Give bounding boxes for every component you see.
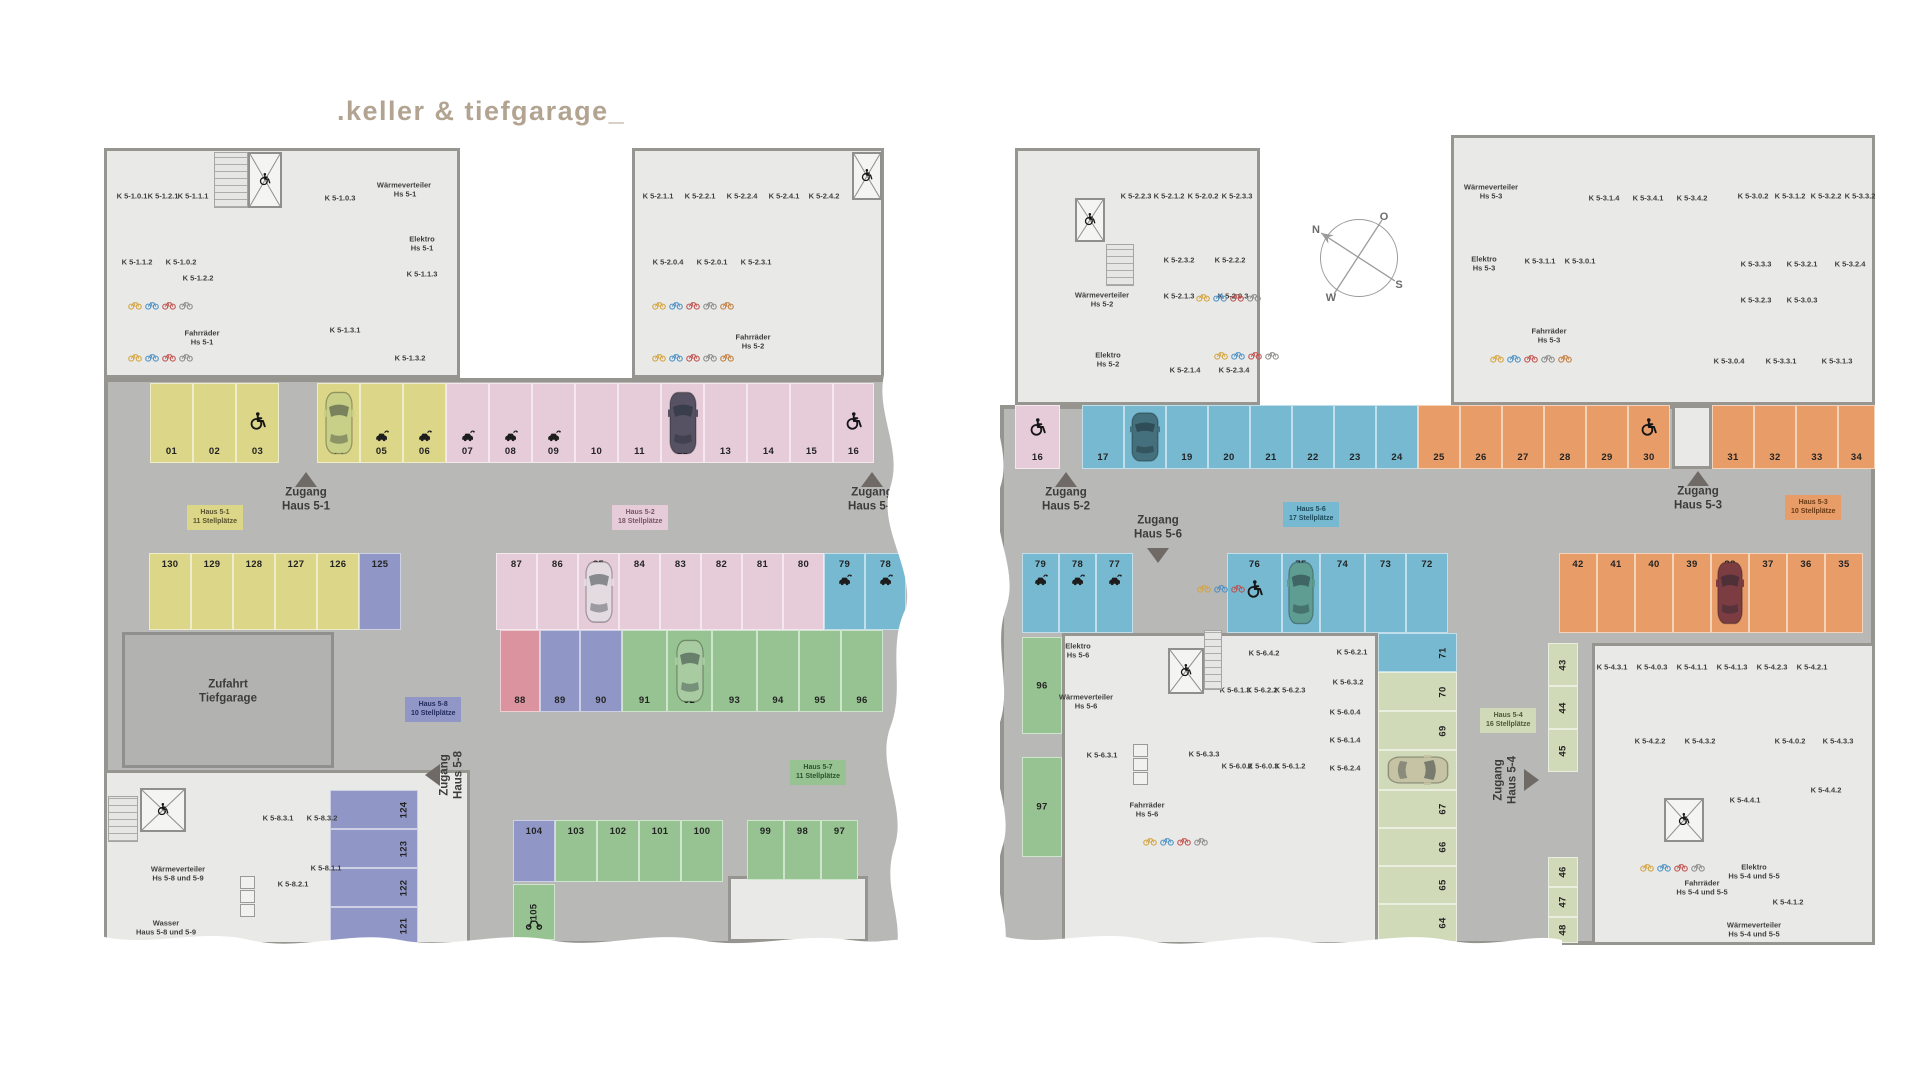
room-label: K 5-3.2.3 — [1741, 295, 1772, 304]
compass-label-o: O — [1380, 211, 1389, 223]
parking-stall-129: 129 — [191, 553, 233, 630]
stall-number: 77 — [1097, 559, 1132, 570]
bicycle-icon — [1558, 353, 1572, 363]
zone-label: Zugang Haus 5-2 — [1042, 486, 1090, 515]
room-label: K 5-2.3.4 — [1219, 365, 1250, 374]
wheelchair-icon — [1180, 664, 1191, 677]
bicycle-icon — [652, 300, 666, 310]
parking-stall-10: 10 — [575, 383, 618, 463]
stall-number: 26 — [1461, 452, 1501, 463]
stall-number: 91 — [623, 695, 666, 706]
bike-rack — [1197, 583, 1245, 593]
parking-stall-16: 16 — [1015, 405, 1060, 469]
stall-number: 86 — [538, 559, 577, 570]
stall-number: 100 — [682, 826, 722, 837]
parking-stall-121: 121 — [330, 907, 418, 945]
room-label: Wärmeverteiler Hs 5-8 und 5-9 — [151, 865, 205, 884]
page-title: .keller & tiefgarage_ — [337, 96, 625, 127]
bike-rack — [1214, 350, 1279, 360]
parking-stall-95: 95 — [799, 630, 841, 712]
stall-number: 124 — [399, 795, 410, 825]
elevator — [140, 788, 186, 832]
room-label: K 5-4.1.2 — [1773, 897, 1804, 906]
stall-number: 41 — [1598, 559, 1634, 570]
bicycle-icon — [686, 352, 700, 362]
zone-badge: Haus 5-3 10 Stellplätze — [1785, 495, 1841, 520]
room-label: K 5-4.2.2 — [1635, 736, 1666, 745]
stall-number: 07 — [447, 446, 488, 457]
elevator — [248, 152, 282, 208]
room-label: K 5-6.4.2 — [1249, 648, 1280, 657]
stall-number: 125 — [360, 559, 400, 570]
parking-stall-48: 48 — [1548, 917, 1578, 943]
stall-number: 05 — [361, 446, 402, 457]
parking-stall-26: 26 — [1460, 405, 1502, 469]
zone-label: Zugang Haus 5-4 — [1492, 756, 1521, 804]
room-label: Fahrräder Hs 5-2 — [735, 333, 770, 352]
direction-triangle-u — [295, 472, 317, 487]
room-label: K 5-3.1.4 — [1589, 193, 1620, 202]
parking-stall-24: 24 — [1376, 405, 1418, 469]
bicycle-icon — [1231, 350, 1245, 360]
parking-stall-42: 42 — [1559, 553, 1597, 633]
parking-stall-11: 11 — [618, 383, 661, 463]
stall-number: 16 — [834, 446, 873, 457]
parking-stall-29: 29 — [1586, 405, 1628, 469]
room-label: K 5-1.0.2 — [166, 257, 197, 266]
parking-stall-32: 32 — [1754, 405, 1796, 469]
parking-stall-27: 27 — [1502, 405, 1544, 469]
stall-number: 27 — [1503, 452, 1543, 463]
parking-stall-23: 23 — [1334, 405, 1376, 469]
parked-car — [324, 390, 354, 456]
stall-number: 80 — [784, 559, 823, 570]
wheelchair-icon — [1084, 213, 1095, 226]
room-label: K 5-2.1.4 — [1170, 365, 1201, 374]
stall-number: 15 — [791, 446, 832, 457]
parking-stall-75: 75 — [1282, 553, 1320, 633]
ev-charger-icon — [418, 430, 432, 442]
room-label: K 5-2.3.3 — [1222, 191, 1253, 200]
stall-number: 103 — [556, 826, 596, 837]
room-label: K 5-4.3.1 — [1597, 662, 1628, 671]
parking-stall-46: 46 — [1548, 857, 1578, 887]
room-label: Fahrräder Hs 5-1 — [184, 329, 219, 348]
stall-number: 28 — [1545, 452, 1585, 463]
parking-stall-89: 89 — [540, 630, 580, 712]
stall-number: 121 — [399, 911, 410, 941]
bicycle-icon — [720, 352, 734, 362]
parking-stall-96: 96 — [1022, 637, 1062, 734]
room-label: K 5-4.3.3 — [1823, 736, 1854, 745]
room-label: K 5-6.2.3 — [1275, 685, 1306, 694]
stall-number: 97 — [1023, 802, 1061, 813]
parking-stall-17: 17 — [1082, 405, 1124, 469]
parking-stall-105: 105 — [513, 884, 555, 940]
room-label: K 5-6.1.4 — [1330, 735, 1361, 744]
parking-stall-87: 87 — [496, 553, 537, 630]
parked-car — [1287, 560, 1315, 626]
parking-stall-96: 96 — [841, 630, 883, 712]
stall-number: 23 — [1335, 452, 1375, 463]
parking-stall-98: 98 — [784, 820, 821, 880]
parking-stall-79: 79 — [1022, 553, 1059, 633]
bicycle-icon — [162, 352, 176, 362]
stall-number: 96 — [842, 695, 882, 706]
car-icon — [324, 390, 354, 456]
parking-stall-37: 37 — [1749, 553, 1787, 633]
stall-number: 104 — [514, 826, 554, 837]
storage-shelf — [1133, 744, 1148, 786]
car-icon — [1287, 560, 1315, 626]
room-label: K 5-4.4.1 — [1730, 795, 1761, 804]
stall-number: 43 — [1558, 650, 1569, 680]
room-label: K 5-3.2.2 — [1811, 191, 1842, 200]
bike-rack — [652, 300, 734, 310]
bicycle-icon — [1197, 583, 1211, 593]
stall-number: 40 — [1636, 559, 1672, 570]
parking-stall-127: 127 — [275, 553, 317, 630]
stall-number: 14 — [748, 446, 789, 457]
parking-stall-15: 15 — [790, 383, 833, 463]
room-label: K 5-6.1.2 — [1275, 761, 1306, 770]
wheelchair-icon — [259, 173, 270, 186]
stall-number: 44 — [1558, 693, 1569, 723]
stall-number: 78 — [866, 559, 905, 570]
room-label: K 5-3.3.2 — [1845, 191, 1876, 200]
room-label: K 5-3.1.2 — [1775, 191, 1806, 200]
wheelchair-icon — [1247, 580, 1263, 598]
direction-triangle-u — [861, 472, 883, 487]
room-label: K 5-1.3.1 — [330, 325, 361, 334]
compass-needle — [1308, 207, 1408, 307]
ev-charger-icon — [838, 574, 852, 586]
parked-car — [668, 390, 698, 456]
parking-stall-128: 128 — [233, 553, 275, 630]
parking-stall-70: 70 — [1378, 672, 1457, 711]
parking-stall-77: 77 — [1096, 553, 1133, 633]
parking-stall-66: 66 — [1378, 828, 1457, 866]
bicycle-icon — [652, 352, 666, 362]
compass-label-s: S — [1395, 279, 1402, 291]
ev-charger-icon — [504, 430, 518, 442]
ev-charger-icon — [547, 430, 561, 442]
stall-number: 11 — [619, 446, 660, 457]
bicycle-icon — [1231, 583, 1245, 593]
bike-rack — [1640, 862, 1705, 872]
stall-number: 66 — [1438, 832, 1449, 862]
parking-stall-35: 35 — [1825, 553, 1863, 633]
room-label: K 5-1.0.3 — [325, 193, 356, 202]
bicycle-icon — [686, 300, 700, 310]
stall-number: 08 — [490, 446, 531, 457]
stall-number: 98 — [785, 826, 820, 837]
parking-stall-09: 09 — [532, 383, 575, 463]
ev-charger-icon — [879, 574, 893, 586]
car-icon — [584, 559, 614, 624]
bicycle-icon — [145, 300, 159, 310]
wheelchair-icon — [157, 803, 168, 816]
rooms-block — [728, 876, 868, 942]
stall-number: 99 — [748, 826, 783, 837]
ev-charger-icon — [418, 430, 432, 442]
bicycle-icon — [1214, 583, 1228, 593]
parking-stall-103: 103 — [555, 820, 597, 882]
parking-stall-28: 28 — [1544, 405, 1586, 469]
parking-stall-31: 31 — [1712, 405, 1754, 469]
elevator — [1168, 648, 1204, 694]
bicycle-icon — [703, 300, 717, 310]
elevator — [1664, 798, 1704, 842]
compass-label-n: N — [1312, 224, 1320, 236]
bicycle-icon — [1194, 836, 1208, 846]
stall-number: 128 — [234, 559, 274, 570]
wheelchair-icon — [1084, 213, 1095, 226]
parking-stall-44: 44 — [1548, 686, 1578, 729]
parking-stall-18: 18 — [1124, 405, 1166, 469]
parking-stall-65: 65 — [1378, 866, 1457, 904]
parking-stall-40: 40 — [1635, 553, 1673, 633]
wheelchair-icon — [861, 169, 872, 182]
direction-triangle-d — [1147, 548, 1169, 563]
ev-charger-icon — [375, 430, 389, 442]
stall-number: 37 — [1750, 559, 1786, 570]
stall-number: 79 — [1023, 559, 1058, 570]
parking-stall-38: 38 — [1711, 553, 1749, 633]
parking-stall-12: 12 — [661, 383, 704, 463]
stall-number: 65 — [1438, 870, 1449, 900]
stall-number: 87 — [497, 559, 536, 570]
room-label: K 5-2.0.2 — [1188, 191, 1219, 200]
direction-triangle-l — [425, 764, 440, 786]
stall-number: 20 — [1209, 452, 1249, 463]
parking-stall-83: 83 — [660, 553, 701, 630]
room-label: Wärmeverteiler Hs 5-1 — [377, 181, 431, 200]
parked-car — [584, 559, 614, 624]
room-label: K 5-2.3.2 — [1164, 255, 1195, 264]
car-icon — [1716, 560, 1744, 626]
room-label: K 5-8.2.1 — [278, 879, 309, 888]
parking-stall-67: 67 — [1378, 790, 1457, 828]
stairs — [214, 152, 248, 208]
zone-badge: Haus 5-6 17 Stellplätze — [1283, 502, 1339, 527]
stall-number: 19 — [1167, 452, 1207, 463]
direction-triangle-u — [1687, 471, 1709, 486]
parking-stall-41: 41 — [1597, 553, 1635, 633]
parking-stall-122: 122 — [330, 868, 418, 907]
bicycle-icon — [1640, 862, 1654, 872]
room-label: K 5-3.3.1 — [1766, 356, 1797, 365]
parking-stall-39: 39 — [1673, 553, 1711, 633]
bike-rack — [1490, 353, 1572, 363]
room-label: Wärmeverteiler Hs 5-4 und 5-5 — [1727, 921, 1781, 940]
room-label: K 5-1.1.3 — [407, 269, 438, 278]
wheelchair-icon — [846, 412, 862, 430]
parking-stall-68: 68 — [1378, 750, 1457, 790]
stall-number: 88 — [501, 695, 539, 706]
car-icon — [668, 390, 698, 456]
elevator — [852, 152, 882, 200]
stall-number: 09 — [533, 446, 574, 457]
parking-stall-124: 124 — [330, 790, 418, 829]
stall-number: 130 — [150, 559, 190, 570]
stall-number: 42 — [1560, 559, 1596, 570]
parking-stall-47: 47 — [1548, 887, 1578, 917]
bicycle-icon — [179, 300, 193, 310]
bike-rack — [1143, 836, 1208, 846]
stall-number: 02 — [194, 446, 235, 457]
wheelchair-icon — [250, 412, 266, 430]
stall-number: 82 — [702, 559, 741, 570]
room-label: K 5-4.1.3 — [1717, 662, 1748, 671]
room-label: K 5-2.4.1 — [769, 191, 800, 200]
ev-charger-icon — [838, 574, 852, 586]
stall-number: 72 — [1407, 559, 1447, 570]
bicycle-icon — [1177, 836, 1191, 846]
room-label: K 5-3.0.4 — [1714, 356, 1745, 365]
room-label: K 5-2.2.4 — [727, 191, 758, 200]
parking-stall-45: 45 — [1548, 729, 1578, 772]
stall-number: 33 — [1797, 452, 1837, 463]
room-label: Fahrräder Hs 5-3 — [1531, 327, 1566, 346]
room-label: K 5-2.2.2 — [1215, 255, 1246, 264]
room-label: Wasser Haus 5-8 und 5-9 — [136, 919, 196, 938]
stall-number: 95 — [800, 695, 840, 706]
bicycle-icon — [1160, 836, 1174, 846]
stairs — [108, 796, 138, 842]
room-label: Wärmeverteiler Hs 5-6 — [1059, 693, 1113, 712]
ev-charger-icon — [1071, 574, 1085, 586]
parking-stall-02: 02 — [193, 383, 236, 463]
parking-stall-01: 01 — [150, 383, 193, 463]
parking-stall-100: 100 — [681, 820, 723, 882]
room-label: K 5-4.3.2 — [1685, 736, 1716, 745]
rooms-block — [1672, 405, 1712, 469]
bicycle-icon — [145, 352, 159, 362]
parking-stall-82: 82 — [701, 553, 742, 630]
parking-stall-25: 25 — [1418, 405, 1460, 469]
parking-stall-13: 13 — [704, 383, 747, 463]
stall-number: 83 — [661, 559, 700, 570]
zone-label: Zugang Haus 5-2 — [848, 486, 896, 515]
stall-number: 71 — [1438, 638, 1449, 668]
parking-stall-22: 22 — [1292, 405, 1334, 469]
car-icon — [1386, 755, 1450, 785]
parking-stall-74: 74 — [1320, 553, 1365, 633]
stall-number: 22 — [1293, 452, 1333, 463]
bicycle-icon — [1490, 353, 1504, 363]
stall-number: 64 — [1438, 908, 1449, 938]
stall-number: 45 — [1558, 736, 1569, 766]
zone-badge: Haus 5-4 16 Stellplätze — [1480, 708, 1536, 733]
bicycle-icon — [720, 300, 734, 310]
parked-car — [1130, 411, 1160, 463]
parking-stall-81: 81 — [742, 553, 783, 630]
bicycle-icon — [703, 352, 717, 362]
room-label: K 5-3.1.1 — [1525, 256, 1556, 265]
room-label: K 5-4.2.1 — [1797, 662, 1828, 671]
stall-number: 67 — [1438, 794, 1449, 824]
stall-number: 36 — [1788, 559, 1824, 570]
wheelchair-icon — [861, 169, 872, 182]
wheelchair-icon — [1641, 418, 1657, 436]
room-label: K 5-2.2.1 — [685, 191, 716, 200]
room-label: K 5-1.1.2 — [122, 257, 153, 266]
ev-charger-icon — [375, 430, 389, 442]
parking-stall-90: 90 — [580, 630, 622, 712]
stairs — [1106, 244, 1134, 286]
ev-charger-icon — [1108, 574, 1122, 586]
parking-stall-97: 97 — [821, 820, 858, 880]
room-label: K 5-4.0.3 — [1637, 662, 1668, 671]
parking-stall-104: 104 — [513, 820, 555, 882]
stall-number: 06 — [404, 446, 445, 457]
room-label: K 5-1.3.2 — [395, 353, 426, 362]
zone-badge: Haus 5-7 11 Stellplätze — [790, 760, 846, 785]
stall-number: 96 — [1023, 680, 1061, 691]
bicycle-icon — [1247, 292, 1261, 302]
room-label: K 5-6.2.1 — [1337, 647, 1368, 656]
bicycle-icon — [1143, 836, 1157, 846]
bike-rack — [1196, 292, 1261, 302]
wheelchair-icon — [1030, 418, 1046, 436]
parking-stall-97: 97 — [1022, 757, 1062, 857]
stall-number: 81 — [743, 559, 782, 570]
parking-stall-84: 84 — [619, 553, 660, 630]
bike-rack — [128, 352, 193, 362]
room-label: K 5-6.0.4 — [1330, 707, 1361, 716]
bicycle-icon — [162, 300, 176, 310]
stall-number: 126 — [318, 559, 358, 570]
stall-number: 25 — [1419, 452, 1459, 463]
stall-number: 97 — [822, 826, 857, 837]
stall-number: 35 — [1826, 559, 1862, 570]
room-label: K 5-4.1.1 — [1677, 662, 1708, 671]
stall-number: 129 — [192, 559, 232, 570]
parking-stall-36: 36 — [1787, 553, 1825, 633]
stall-number: 10 — [576, 446, 617, 457]
bicycle-icon — [1248, 350, 1262, 360]
parking-stall-94: 94 — [757, 630, 799, 712]
stall-number: 30 — [1629, 452, 1669, 463]
stall-number: 76 — [1228, 559, 1281, 570]
parking-stall-130: 130 — [149, 553, 191, 630]
parking-stall-92: 92 — [667, 630, 712, 712]
bicycle-icon — [1230, 292, 1244, 302]
zone-label: Zugang Haus 5-6 — [1134, 514, 1182, 543]
parking-stall-07: 07 — [446, 383, 489, 463]
room-label: K 5-2.0.1 — [697, 257, 728, 266]
room-label: K 5-3.3.3 — [1741, 259, 1772, 268]
bicycle-icon — [1691, 862, 1705, 872]
car-icon — [675, 638, 705, 704]
room-label: K 5-3.4.2 — [1677, 193, 1708, 202]
parking-stall-78: 78 — [1059, 553, 1096, 633]
room-label: Elektro Hs 5-3 — [1471, 255, 1496, 274]
floorplan-page: .keller & tiefgarage_ 010203 04 05 06 07… — [0, 0, 1920, 1080]
compass: N O S W — [1308, 207, 1408, 307]
parking-stall-06: 06 — [403, 383, 446, 463]
bike-rack — [652, 352, 734, 362]
parking-stall-19: 19 — [1166, 405, 1208, 469]
parking-stall-79: 79 — [824, 553, 865, 630]
stall-number: 84 — [620, 559, 659, 570]
room-label: K 5-6.3.2 — [1333, 677, 1364, 686]
room-label: K 5-3.0.1 — [1565, 256, 1596, 265]
stall-number: 89 — [541, 695, 579, 706]
parking-stall-72: 72 — [1406, 553, 1448, 633]
zone-badge: Haus 5-2 18 Stellplätze — [612, 505, 668, 530]
